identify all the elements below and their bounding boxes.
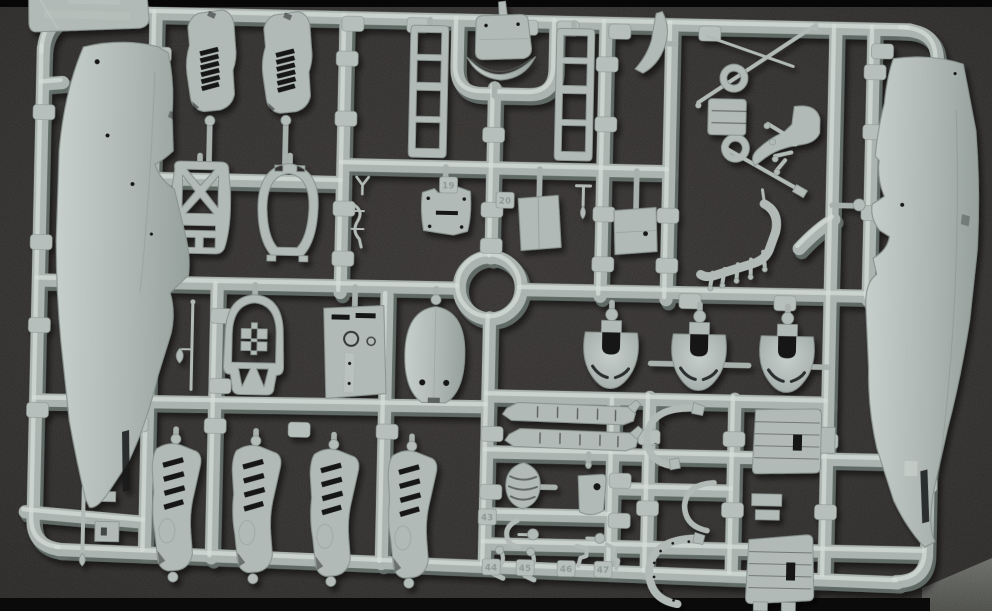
sprue-pad	[33, 104, 55, 119]
gate-ball	[171, 434, 181, 444]
gate-ball	[168, 572, 178, 582]
part-number-tag: 43	[478, 509, 496, 525]
gate-ball	[404, 578, 414, 588]
sprue-pad	[774, 296, 796, 311]
sprue-pad	[657, 208, 679, 223]
sprue-pad	[814, 504, 836, 519]
part-number-label: 47	[597, 566, 610, 576]
gate-ball	[853, 199, 865, 211]
sprue-pad	[335, 111, 357, 126]
sprue-pad	[336, 51, 358, 66]
part-number-label: 44	[485, 563, 498, 573]
gate-ball	[326, 576, 336, 586]
part-number-label: 43	[481, 513, 494, 523]
sprue-pad	[593, 207, 615, 222]
part-number-tag: 20	[496, 192, 514, 208]
sprue-pad	[332, 251, 354, 266]
cockpit-floor-plate	[322, 304, 388, 399]
sprue-pad	[480, 238, 502, 253]
sprue-pad	[871, 44, 893, 59]
part-number-label: 19	[442, 181, 455, 191]
radiator-block-b	[745, 534, 815, 611]
cowl-side-panel-upper-b	[261, 11, 313, 114]
sprue-pad	[28, 317, 50, 332]
part-number-tag: 44	[482, 559, 500, 575]
part-number-tag: 19	[439, 177, 457, 193]
gate-ball	[431, 295, 441, 305]
sprue-pad	[595, 117, 617, 132]
part-number-tag: 46	[557, 560, 575, 576]
sprue-pad	[333, 201, 355, 216]
sprue-pad	[481, 426, 503, 441]
sprue-pad	[864, 64, 886, 79]
access-door-plate	[517, 194, 562, 251]
strut-block	[708, 99, 749, 136]
deck-plate	[613, 207, 658, 256]
sprue-pad	[608, 513, 630, 528]
part-number-label: 46	[560, 565, 573, 575]
sprue-pad	[209, 378, 231, 393]
sprue-pad	[596, 57, 618, 72]
sprue-pad	[342, 16, 364, 31]
gate-ball	[281, 115, 291, 125]
sprue-pad	[482, 127, 504, 142]
sprue-pad	[288, 422, 310, 437]
part-number-tag: 47	[594, 561, 612, 577]
egg-dome-cover	[404, 306, 466, 403]
gate-ball	[329, 439, 339, 449]
sprue-pad	[721, 502, 743, 517]
sprue-pad	[656, 258, 678, 273]
cowl-side-panel-upper-a	[185, 9, 237, 112]
part-number-label: 20	[499, 197, 512, 207]
gate-ball	[251, 436, 261, 446]
sprue-pad	[376, 424, 398, 439]
sprue-pad	[592, 257, 614, 272]
top-shadow-bar	[0, 0, 992, 7]
gate-ball	[407, 441, 417, 451]
sprue-scene: 19204344454647	[0, 0, 992, 611]
sprue-pad	[609, 473, 631, 488]
sprue-pad	[636, 501, 658, 516]
gate-ball	[248, 574, 258, 584]
gate-ball	[205, 116, 215, 126]
sprue-pad	[723, 431, 745, 446]
sprue-pad	[480, 484, 502, 499]
sprue-photo: 19204344454647	[0, 0, 992, 611]
sprue-pad	[30, 234, 52, 249]
part-number-label: 45	[519, 564, 532, 574]
sprue-pad	[609, 24, 631, 39]
sprue-pad	[26, 402, 48, 417]
sprue-pad	[204, 418, 226, 433]
instrument-panel	[421, 186, 471, 235]
part-number-tag: 45	[516, 560, 534, 576]
